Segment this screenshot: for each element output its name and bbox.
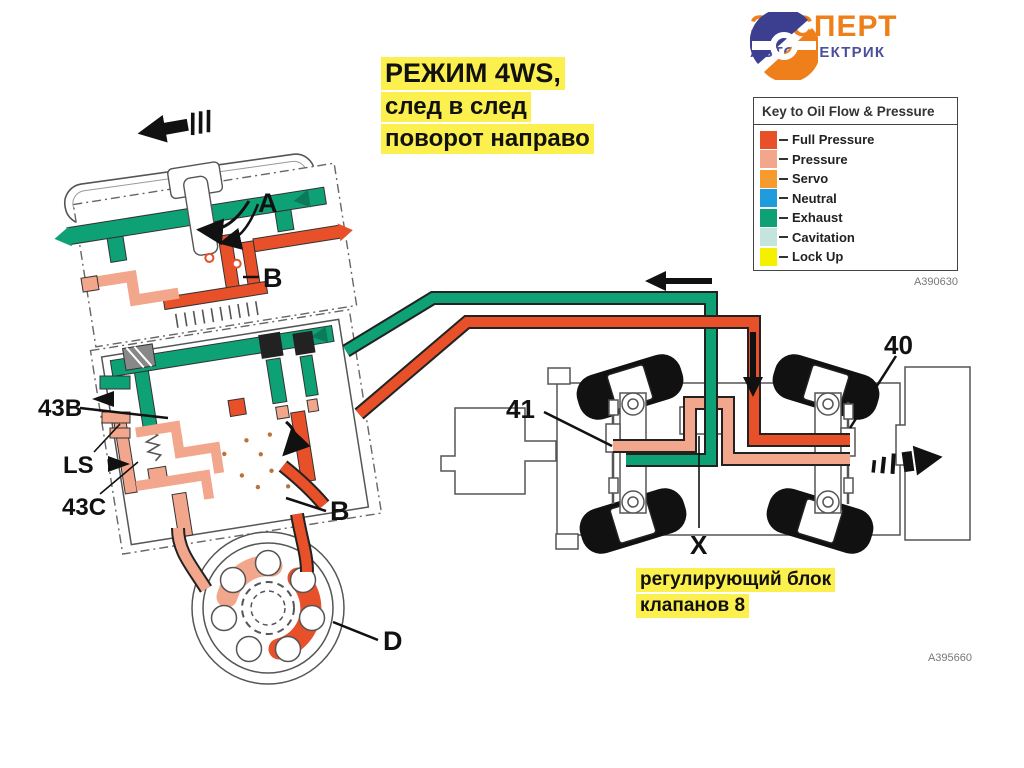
label-a: A	[258, 188, 278, 218]
legend-tick	[779, 197, 788, 199]
caption-line-2: клапанов 8	[636, 594, 749, 618]
legend-item: Cavitation	[760, 228, 957, 248]
oil-flow-legend: Key to Oil Flow & Pressure Full Pressure…	[753, 97, 958, 271]
legend-item: Full Pressure	[760, 130, 957, 150]
label-43b: 43B	[38, 395, 82, 422]
page: { "logo": { "name": "ЭКСПЕРТ", "subname"…	[0, 0, 1024, 768]
label-b-lower: B	[330, 496, 350, 526]
legend-tick	[779, 256, 788, 258]
exhaust-port-43b	[100, 376, 130, 389]
legend-swatch	[760, 209, 777, 227]
brand-logo-icon	[750, 12, 818, 80]
steering-arrow-left-icon	[135, 107, 213, 147]
legend-item: Neutral	[760, 189, 957, 209]
legend-tick	[779, 139, 788, 141]
legend-tick	[779, 217, 788, 219]
title-line-2: след в след	[381, 92, 531, 122]
title-line-1: РЕЖИМ 4WS,	[381, 57, 565, 90]
legend-label: Lock Up	[792, 249, 843, 264]
label-41: 41	[506, 394, 535, 424]
legend-label: Full Pressure	[792, 132, 874, 147]
label-x: X	[690, 530, 708, 560]
legend-label: Servo	[792, 171, 828, 186]
legend-swatch	[760, 150, 777, 168]
legend-tick	[779, 158, 788, 160]
frame-tab-top	[548, 368, 570, 384]
frame-tab-bottom	[556, 534, 578, 549]
legend-swatch	[760, 228, 777, 246]
page-title: РЕЖИМ 4WS, след в след поворот направо	[381, 57, 594, 156]
legend-swatch	[760, 248, 777, 266]
title-line-3: поворот направо	[381, 124, 594, 154]
legend-label: Cavitation	[792, 230, 855, 245]
legend-tick	[779, 178, 788, 180]
legend-tick	[779, 236, 788, 238]
figure-code-diagram: A395660	[0, 652, 972, 664]
legend-item: Pressure	[760, 150, 957, 170]
legend-swatch	[760, 189, 777, 207]
legend-item: Exhaust	[760, 208, 957, 228]
brand-logo: ЭКСПЕРТ АВТОЭЛЕКТРИК	[750, 12, 897, 60]
exhaust-out-arrow-icon	[53, 227, 72, 249]
label-40: 40	[884, 330, 913, 360]
legend-items: Full PressurePressureServoNeutralExhaust…	[754, 125, 957, 267]
legend-label: Exhaust	[792, 210, 843, 225]
counterweight	[441, 408, 556, 494]
legend-item: Lock Up	[760, 247, 957, 267]
legend-header: Key to Oil Flow & Pressure	[754, 98, 957, 125]
label-ls: LS	[63, 452, 94, 479]
figure-code-legend: A390630	[0, 276, 958, 288]
label-43c: 43C	[62, 494, 106, 521]
legend-label: Pressure	[792, 152, 848, 167]
valve-block-caption: регулирующий блок клапанов 8	[636, 568, 835, 620]
legend-item: Servo	[760, 169, 957, 189]
legend-swatch	[760, 131, 777, 149]
rotor-star	[242, 582, 294, 634]
caption-line-1: регулирующий блок	[636, 568, 835, 592]
legend-label: Neutral	[792, 191, 837, 206]
legend-swatch	[760, 170, 777, 188]
